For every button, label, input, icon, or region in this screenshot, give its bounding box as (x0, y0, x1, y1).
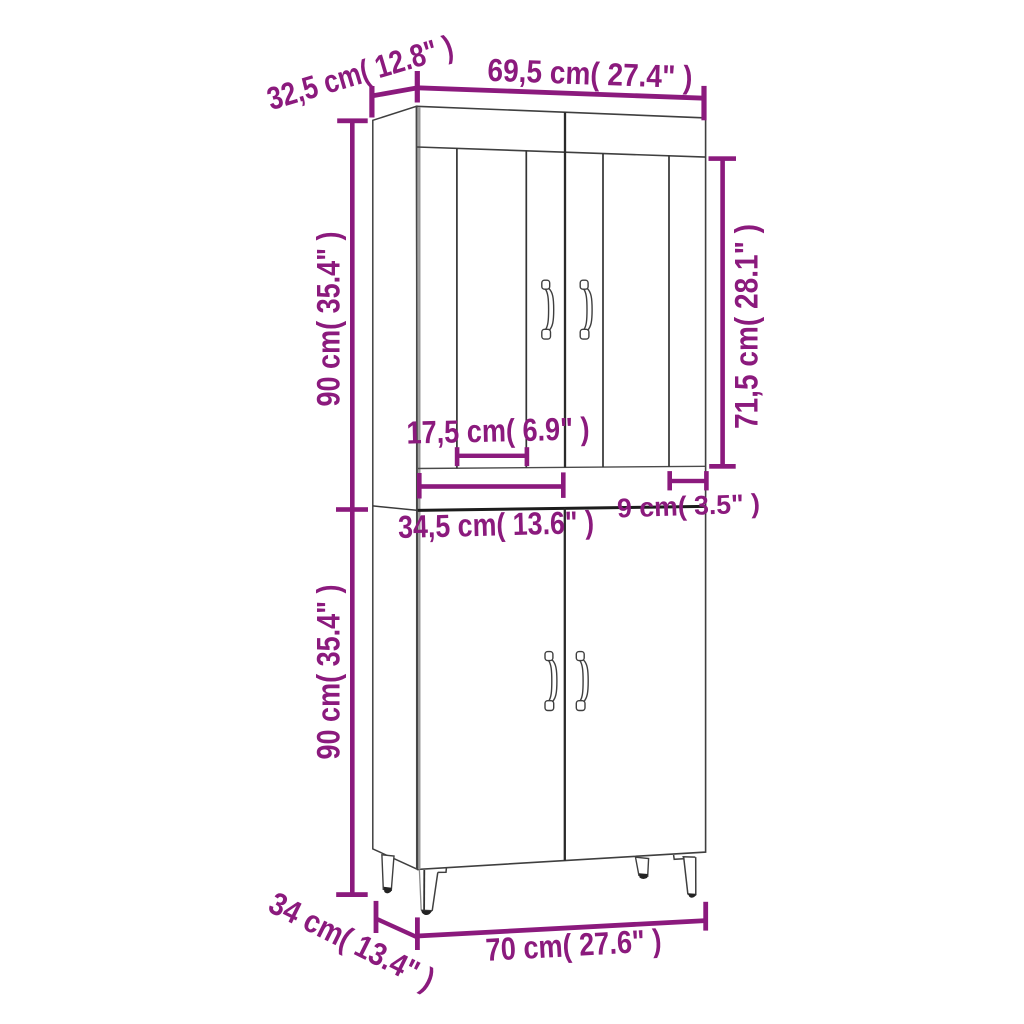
svg-text:90 cm( 35.4" ): 90 cm( 35.4" ) (311, 585, 347, 760)
svg-text:9 cm( 3.5" ): 9 cm( 3.5" ) (617, 489, 761, 524)
svg-text:90 cm( 35.4" ): 90 cm( 35.4" ) (311, 232, 347, 407)
svg-text:71,5 cm( 28.1" ): 71,5 cm( 28.1" ) (729, 224, 765, 429)
svg-text:17,5 cm( 6.9" ): 17,5 cm( 6.9" ) (406, 410, 590, 450)
svg-text:34,5 cm( 13.6" ): 34,5 cm( 13.6" ) (398, 504, 595, 545)
svg-text:69,5 cm( 27.4" ): 69,5 cm( 27.4" ) (487, 52, 693, 95)
